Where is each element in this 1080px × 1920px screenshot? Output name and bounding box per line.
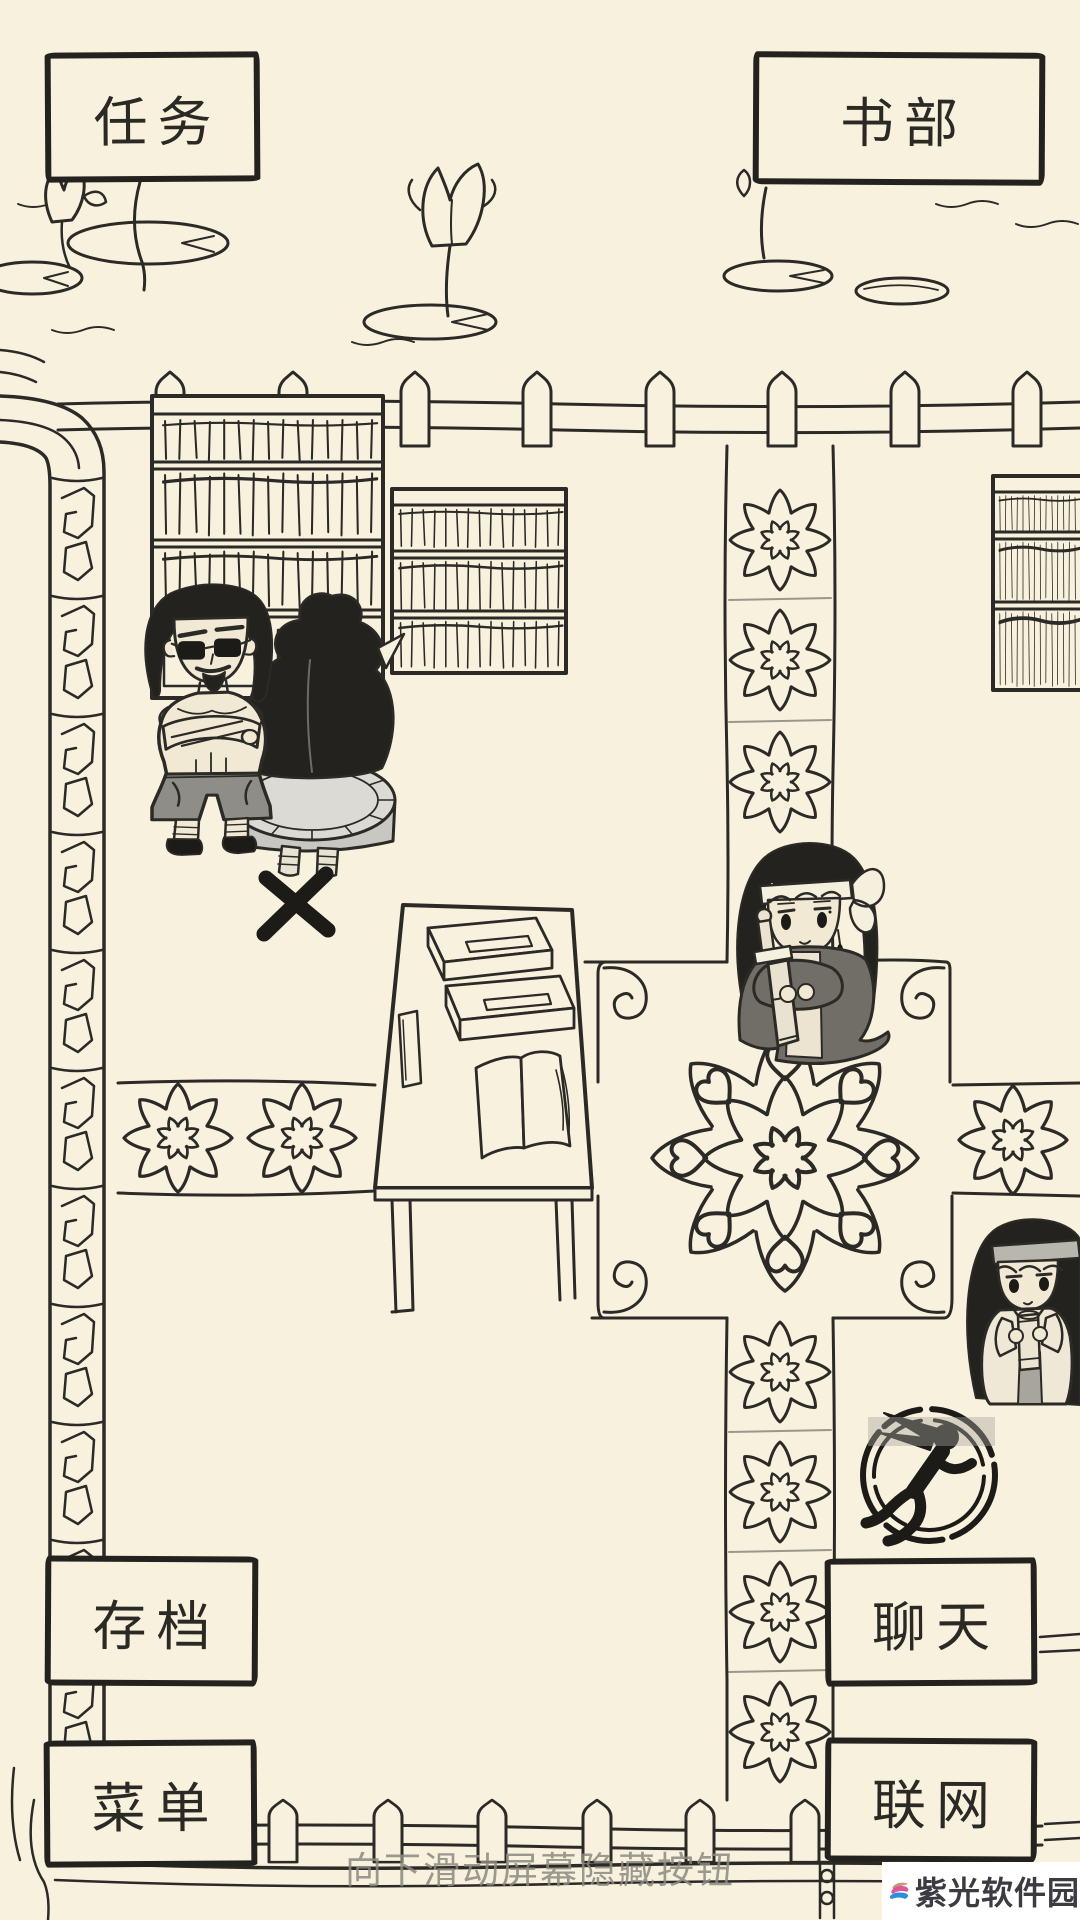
- study-desk: [375, 905, 592, 1312]
- tasks-button[interactable]: 任务: [45, 51, 261, 182]
- cooldown-overlay: [868, 1417, 995, 1446]
- menu-button[interactable]: 菜单: [44, 1739, 258, 1867]
- right-wall-stub: [1040, 1634, 1080, 1840]
- book-dept-button[interactable]: 书部: [753, 51, 1046, 186]
- npc-muscular-man[interactable]: [145, 584, 272, 855]
- game-screen: 任务 书部 存档 菜单 聊天 联网 向下滑动屏幕隐藏按钮 紫光软件园: [0, 0, 1080, 1920]
- bookshelf-right: [993, 476, 1080, 690]
- network-button[interactable]: 联网: [825, 1737, 1038, 1862]
- swipe-hint-text: 向下滑动屏幕隐藏按钮: [300, 1840, 780, 1894]
- gate-post: [816, 1862, 838, 1918]
- flower-path-bottom: [726, 1318, 835, 1802]
- chat-button[interactable]: 聊天: [825, 1557, 1038, 1686]
- npc-sword-woman[interactable]: [737, 843, 889, 1064]
- npc-scroll-girl[interactable]: [967, 1219, 1080, 1405]
- wave-swirl-logo: [889, 1868, 910, 1914]
- save-button[interactable]: 存档: [45, 1555, 259, 1686]
- mandala-floor-medallion: [652, 1025, 918, 1291]
- lotus-pond: [0, 164, 1078, 345]
- flower-band-right: [953, 1083, 1080, 1196]
- run-button[interactable]: [850, 1393, 1010, 1553]
- flower-band-left: [118, 1081, 375, 1195]
- running-figure-icon: [850, 1393, 1010, 1553]
- watermark-badge: 紫光软件园: [882, 1862, 1080, 1920]
- watermark-site-name: 紫光软件园: [915, 1868, 1080, 1914]
- bookshelf-middle: [392, 489, 566, 673]
